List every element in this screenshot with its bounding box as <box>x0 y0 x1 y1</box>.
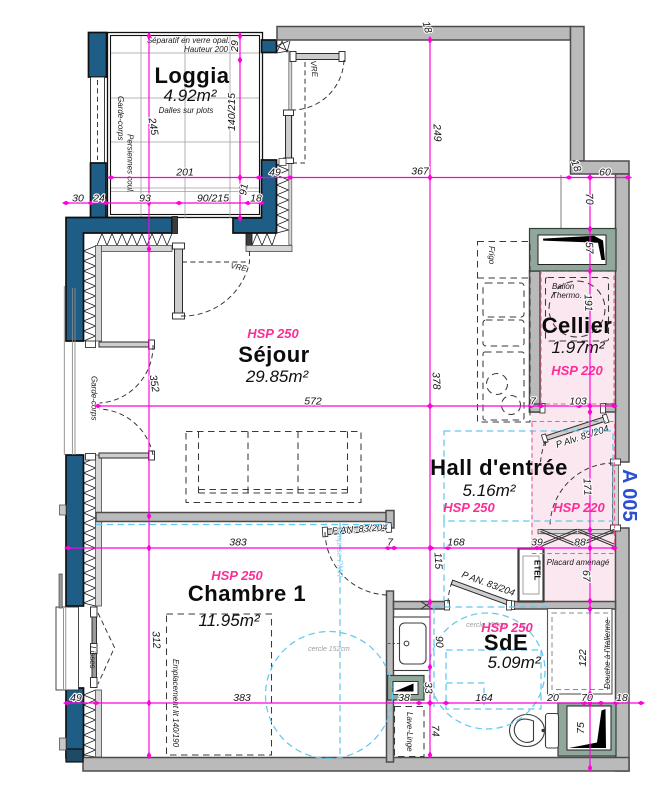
svg-text:HSP 220: HSP 220 <box>551 363 603 378</box>
svg-text:29.85m²: 29.85m² <box>245 367 310 386</box>
svg-text:Garde-corps: Garde-corps <box>116 96 125 140</box>
svg-text:Garde-corps: Garde-corps <box>90 376 99 420</box>
svg-text:383: 383 <box>233 692 251 704</box>
svg-text:164: 164 <box>475 692 493 704</box>
svg-text:39: 39 <box>531 537 543 549</box>
svg-text:70: 70 <box>583 193 596 205</box>
svg-text:74: 74 <box>429 725 442 737</box>
svg-text:Persiennes coul.: Persiennes coul. <box>126 134 135 193</box>
svg-text:312: 312 <box>150 631 163 649</box>
svg-text:A 005: A 005 <box>618 469 640 522</box>
svg-text:57: 57 <box>583 242 596 255</box>
svg-text:4.92m²: 4.92m² <box>164 86 218 105</box>
svg-text:29: 29 <box>229 40 241 53</box>
svg-text:Hall d'entrée: Hall d'entrée <box>430 455 568 480</box>
svg-text:5.16m²: 5.16m² <box>463 481 517 500</box>
svg-text:18: 18 <box>250 193 262 205</box>
svg-text:383: 383 <box>229 537 247 549</box>
svg-text:Chambre 1: Chambre 1 <box>188 581 306 606</box>
svg-text:Séjour: Séjour <box>238 342 309 367</box>
svg-text:Loggia: Loggia <box>154 63 229 88</box>
svg-text:249: 249 <box>430 123 443 142</box>
svg-text:93: 93 <box>139 193 151 205</box>
svg-text:24: 24 <box>92 193 105 205</box>
svg-text:33: 33 <box>422 682 435 694</box>
svg-text:Lave-Linge: Lave-Linge <box>405 712 414 752</box>
svg-text:Séparatif en verre opal.: Séparatif en verre opal. <box>147 36 230 45</box>
svg-text:49: 49 <box>70 692 82 704</box>
svg-text:ETEL: ETEL <box>533 560 542 581</box>
svg-text:115: 115 <box>432 552 445 570</box>
svg-text:11.95m²: 11.95m² <box>198 611 260 630</box>
svg-text:Thermo.: Thermo. <box>552 291 582 300</box>
svg-text:Lisses: Lisses <box>88 646 97 669</box>
svg-text:cercle 152cm: cercle 152cm <box>308 646 350 653</box>
svg-text:60: 60 <box>599 167 611 179</box>
svg-text:Emprise PMR: Emprise PMR <box>335 528 344 578</box>
svg-text:103: 103 <box>569 396 587 408</box>
svg-text:Placard aménagé: Placard aménagé <box>547 558 610 567</box>
svg-text:91: 91 <box>237 183 251 197</box>
svg-text:18: 18 <box>616 692 628 704</box>
svg-text:90/215: 90/215 <box>197 193 229 205</box>
svg-text:49: 49 <box>269 167 281 179</box>
svg-text:38: 38 <box>398 692 410 704</box>
svg-text:88: 88 <box>574 537 586 549</box>
svg-text:HSP 250: HSP 250 <box>443 500 495 515</box>
svg-text:367: 367 <box>411 166 430 178</box>
svg-text:171: 171 <box>581 478 594 496</box>
svg-text:378: 378 <box>430 372 443 390</box>
svg-text:572: 572 <box>304 396 322 408</box>
svg-text:Hauteur 200: Hauteur 200 <box>184 45 229 54</box>
svg-text:75: 75 <box>575 722 587 734</box>
svg-text:Cellier: Cellier <box>542 313 613 338</box>
svg-text:201: 201 <box>175 167 194 179</box>
svg-text:5.09m²: 5.09m² <box>488 653 542 672</box>
svg-text:191: 191 <box>582 294 595 312</box>
svg-text:70: 70 <box>581 692 593 704</box>
svg-text:Douche à l'italienne: Douche à l'italienne <box>603 619 612 689</box>
svg-text:122: 122 <box>577 649 589 667</box>
svg-text:90: 90 <box>433 636 446 648</box>
svg-text:140/215: 140/215 <box>226 93 238 131</box>
svg-text:20: 20 <box>546 692 559 704</box>
svg-text:HSP 220: HSP 220 <box>553 500 605 515</box>
svg-text:67: 67 <box>580 570 593 583</box>
svg-text:168: 168 <box>447 537 465 549</box>
svg-text:1.97m²: 1.97m² <box>552 338 606 357</box>
svg-text:SdE: SdE <box>484 630 528 655</box>
svg-text:30: 30 <box>72 193 84 205</box>
svg-text:Dalles sur plots: Dalles sur plots <box>159 106 214 115</box>
svg-text:Frigo: Frigo <box>487 246 496 265</box>
svg-text:HSP 250: HSP 250 <box>247 326 299 341</box>
svg-text:Ballon: Ballon <box>552 282 575 291</box>
